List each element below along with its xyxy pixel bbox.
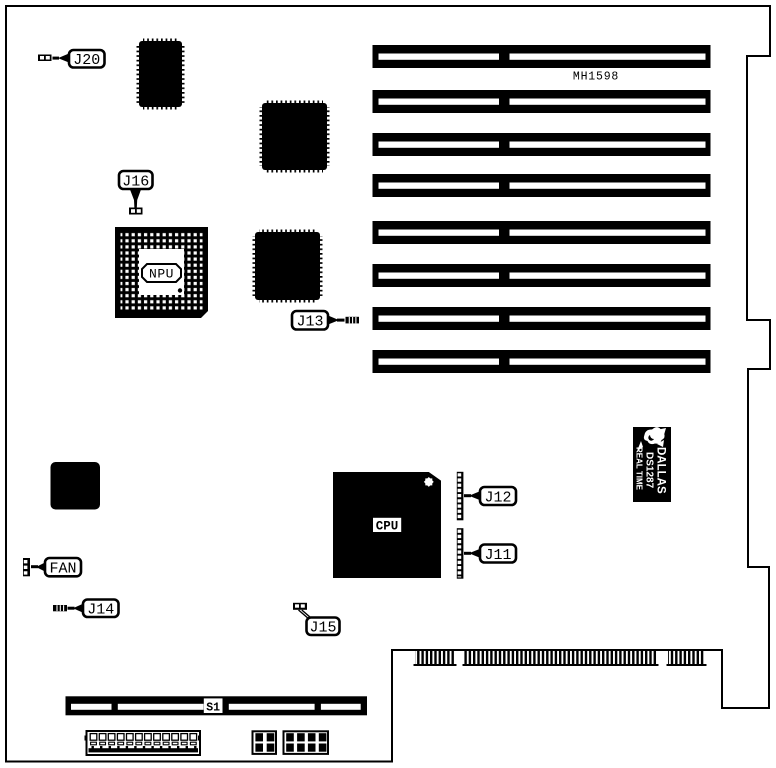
svg-text:MH1598: MH1598	[573, 71, 619, 84]
svg-text:J15: J15	[309, 620, 336, 637]
svg-text:REAL TIME: REAL TIME	[635, 447, 644, 491]
svg-text:S1: S1	[206, 702, 220, 715]
svg-text:J16: J16	[122, 173, 149, 190]
svg-text:DALLAS: DALLAS	[655, 447, 667, 494]
svg-text:J13: J13	[296, 314, 323, 331]
svg-text:J20: J20	[73, 52, 100, 69]
svg-text:NPU: NPU	[149, 267, 174, 282]
svg-text:J11: J11	[484, 547, 511, 564]
svg-text:J12: J12	[484, 489, 511, 506]
svg-text:CPU: CPU	[376, 520, 399, 534]
svg-text:J14: J14	[87, 602, 114, 619]
svg-text:DS1287: DS1287	[644, 452, 655, 489]
svg-text:FAN: FAN	[49, 561, 76, 578]
